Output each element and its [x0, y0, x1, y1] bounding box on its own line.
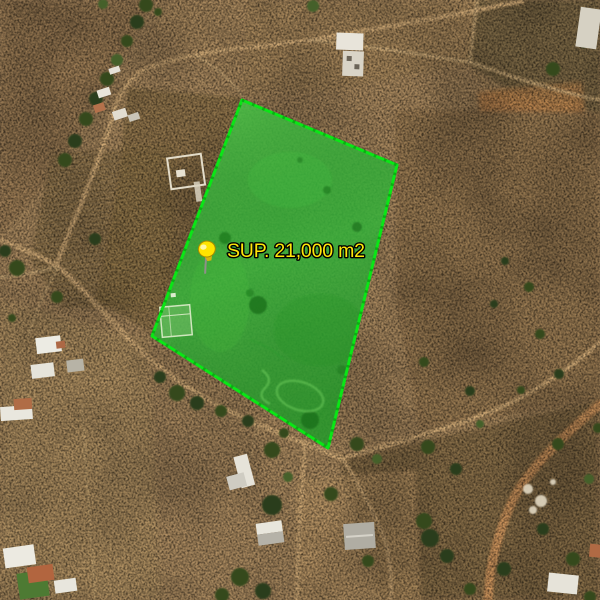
satellite-map[interactable]: SUP. 21,000 m2 [0, 0, 600, 600]
building [256, 520, 285, 545]
parcel-area-label: SUP. 21,000 m2 [227, 240, 365, 262]
satellite-map-view[interactable]: SUP. 21,000 m2 [0, 0, 600, 600]
building [343, 522, 376, 550]
